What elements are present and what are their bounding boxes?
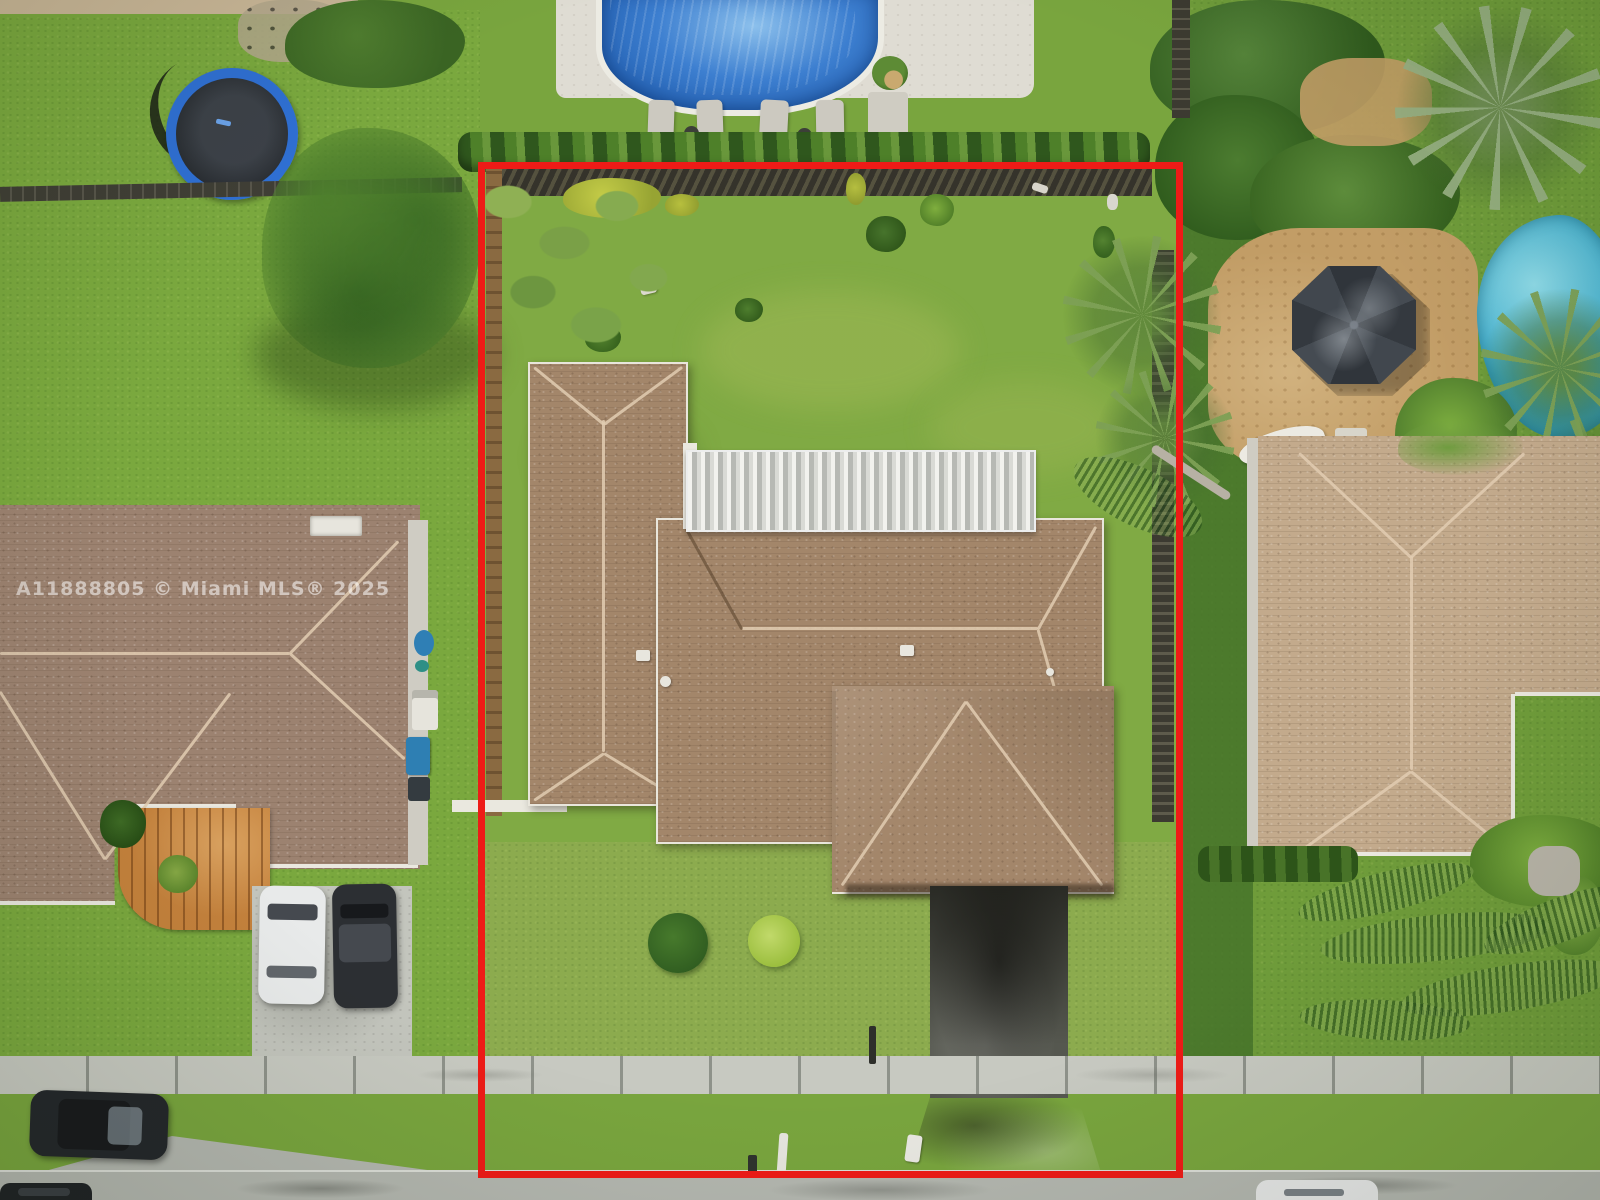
aerial-photo: A11888805 © Miami MLS® 2025: [0, 0, 1600, 1200]
vignette: [0, 0, 1600, 1200]
